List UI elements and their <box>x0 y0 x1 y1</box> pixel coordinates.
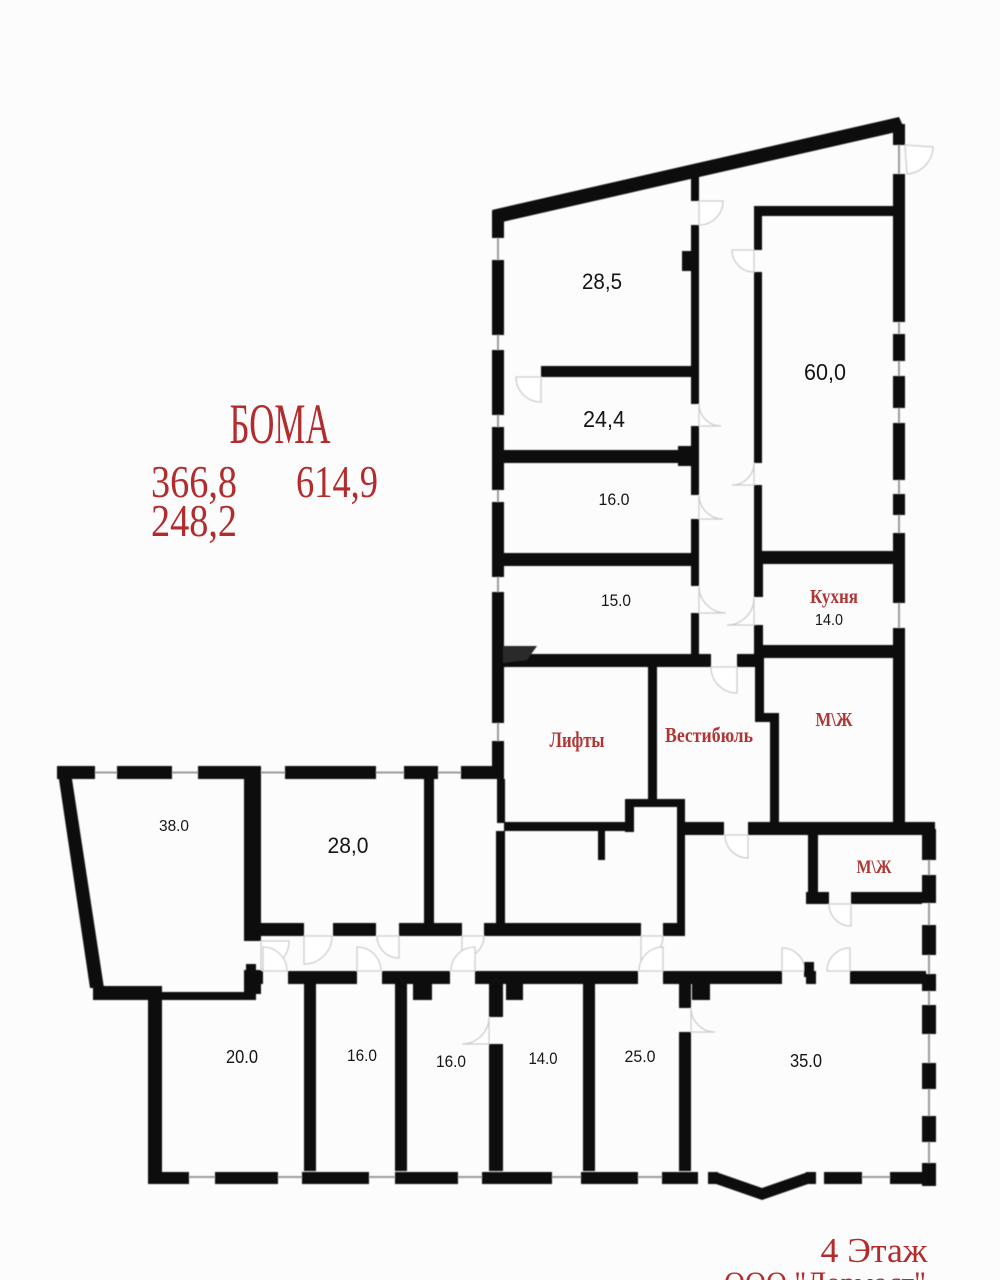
svg-text:24,4: 24,4 <box>583 406 625 432</box>
svg-text:Кухня: Кухня <box>810 586 858 608</box>
svg-text:60,0: 60,0 <box>804 359 846 385</box>
svg-text:614,9: 614,9 <box>296 456 378 507</box>
svg-text:4 Этаж: 4 Этаж <box>821 1231 929 1270</box>
svg-text:ООО "Дормост": ООО "Дормост" <box>724 1266 926 1280</box>
svg-text:БОМА: БОМА <box>230 393 331 456</box>
svg-text:25.0: 25.0 <box>625 1047 656 1066</box>
svg-text:М\Ж: М\Ж <box>857 857 892 878</box>
svg-text:14.0: 14.0 <box>815 612 843 629</box>
svg-text:38.0: 38.0 <box>159 818 189 835</box>
svg-text:Лифты: Лифты <box>550 727 605 752</box>
svg-text:248,2: 248,2 <box>151 495 237 546</box>
svg-text:15.0: 15.0 <box>601 591 631 610</box>
svg-text:20.0: 20.0 <box>226 1047 258 1067</box>
svg-text:16.0: 16.0 <box>436 1052 466 1071</box>
svg-text:14.0: 14.0 <box>529 1049 558 1068</box>
svg-text:28,5: 28,5 <box>582 269 622 294</box>
svg-text:М\Ж: М\Ж <box>816 709 853 731</box>
svg-text:16.0: 16.0 <box>347 1046 377 1065</box>
svg-text:35.0: 35.0 <box>790 1051 822 1071</box>
svg-text:16.0: 16.0 <box>599 490 630 509</box>
svg-text:Вестибюль: Вестибюль <box>665 723 753 747</box>
svg-text:28,0: 28,0 <box>328 833 369 858</box>
